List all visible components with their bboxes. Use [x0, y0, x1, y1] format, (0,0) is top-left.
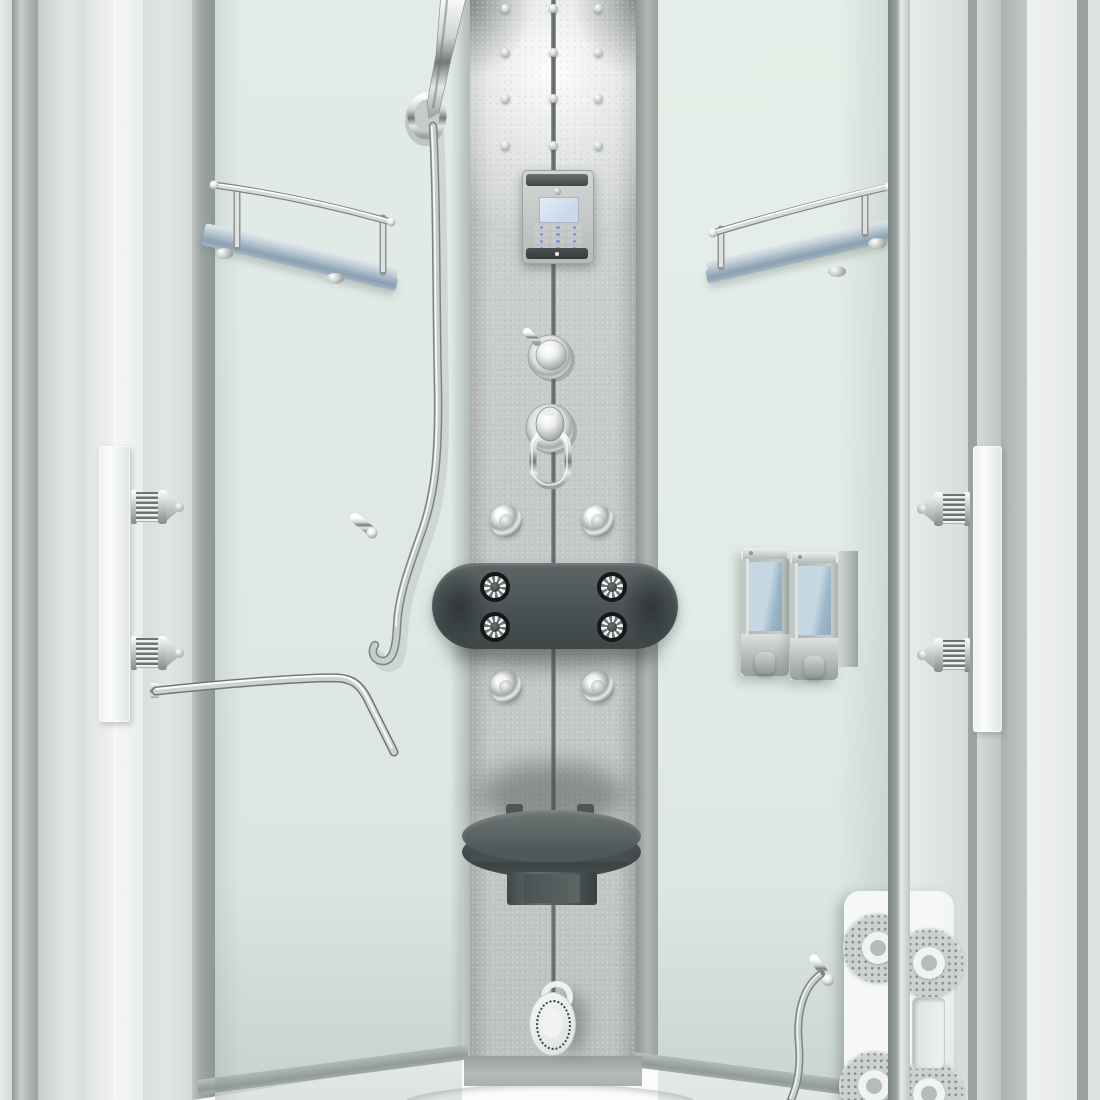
speaker-panel-hose	[790, 959, 834, 1100]
shower-hose	[355, 126, 444, 667]
grab-bar	[150, 676, 394, 752]
shower-cabin-photo	[0, 0, 1100, 1100]
right-door-frame-front-bar	[888, 0, 910, 1100]
shelf-rail-right	[709, 183, 893, 268]
chrome-fittings-layer	[0, 0, 1100, 1100]
thermostat-knob	[527, 332, 575, 382]
dial-lever	[527, 332, 537, 342]
diverter-knob	[526, 404, 577, 486]
shelf-rail-left	[210, 181, 396, 273]
